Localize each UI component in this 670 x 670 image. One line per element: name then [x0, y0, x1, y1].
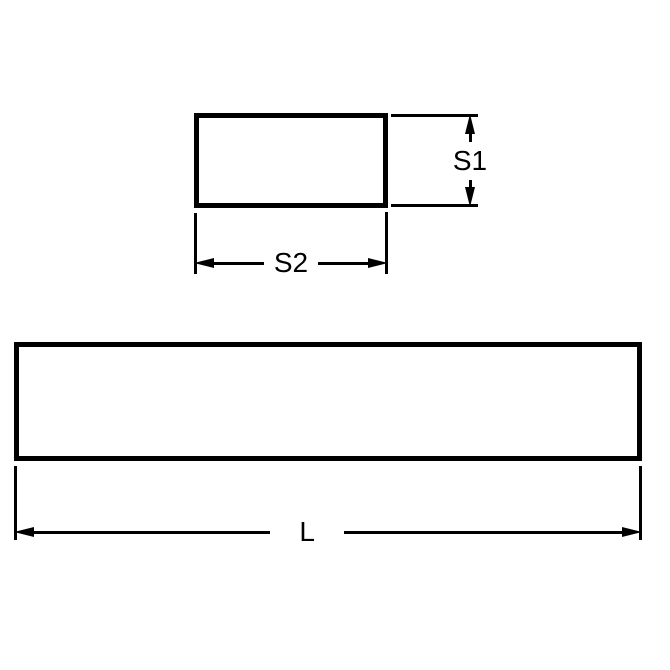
s2-dimension-line-right	[318, 262, 368, 265]
arrow-down-icon	[465, 187, 475, 207]
s2-dimension: S2	[194, 249, 388, 277]
l-dimension: L	[14, 518, 642, 546]
arrow-right-icon	[622, 527, 642, 537]
arrow-left-icon	[194, 258, 214, 268]
technical-drawing-canvas: S1 S2 L	[0, 0, 670, 670]
s1-dimension-line-lower	[469, 180, 472, 188]
s2-label: S2	[264, 249, 318, 277]
s1-dimension-line-upper	[469, 134, 472, 142]
l-dimension-line-right	[344, 531, 622, 534]
side-view-rectangle	[14, 342, 642, 461]
arrow-right-icon	[368, 258, 388, 268]
l-label: L	[270, 518, 344, 546]
s1-dimension: S1	[446, 114, 494, 207]
end-view-rectangle	[194, 113, 388, 208]
arrow-up-icon	[465, 114, 475, 134]
arrow-left-icon	[14, 527, 34, 537]
l-dimension-line-left	[34, 531, 270, 534]
s1-label: S1	[453, 142, 487, 180]
s2-dimension-line-left	[214, 262, 264, 265]
